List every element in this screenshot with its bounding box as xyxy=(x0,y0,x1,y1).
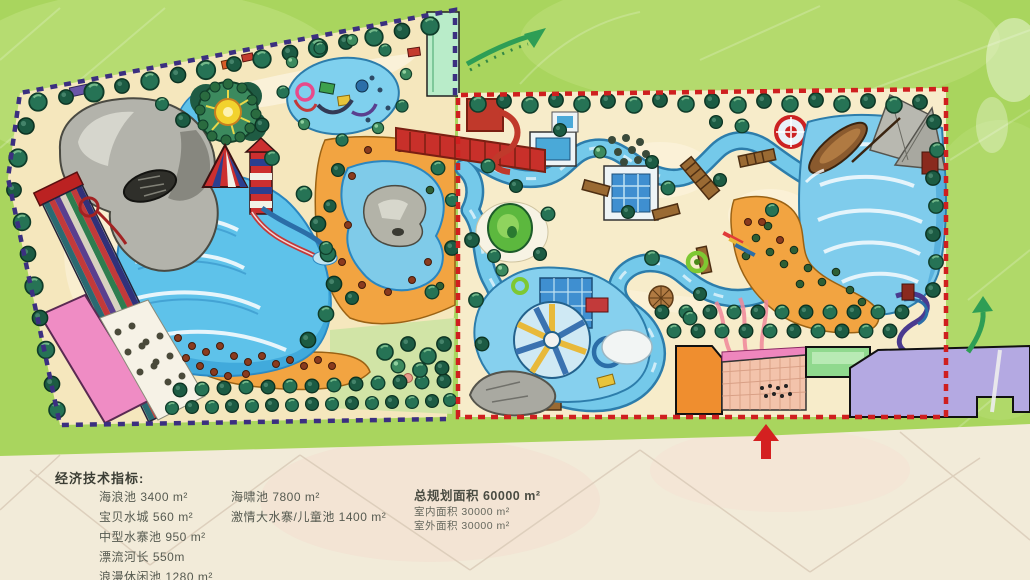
east-buildings xyxy=(676,346,1030,417)
east-park xyxy=(396,88,1030,417)
masterplan-drawing xyxy=(0,0,1030,580)
waterpark-masterplan: 经济技术指标: 海浪池 3400 m² 宝贝水城 560 m² 中型水寨池 95… xyxy=(0,0,1030,580)
plaza xyxy=(722,355,806,410)
east-red-ring xyxy=(776,117,806,147)
orange-building xyxy=(676,346,722,414)
